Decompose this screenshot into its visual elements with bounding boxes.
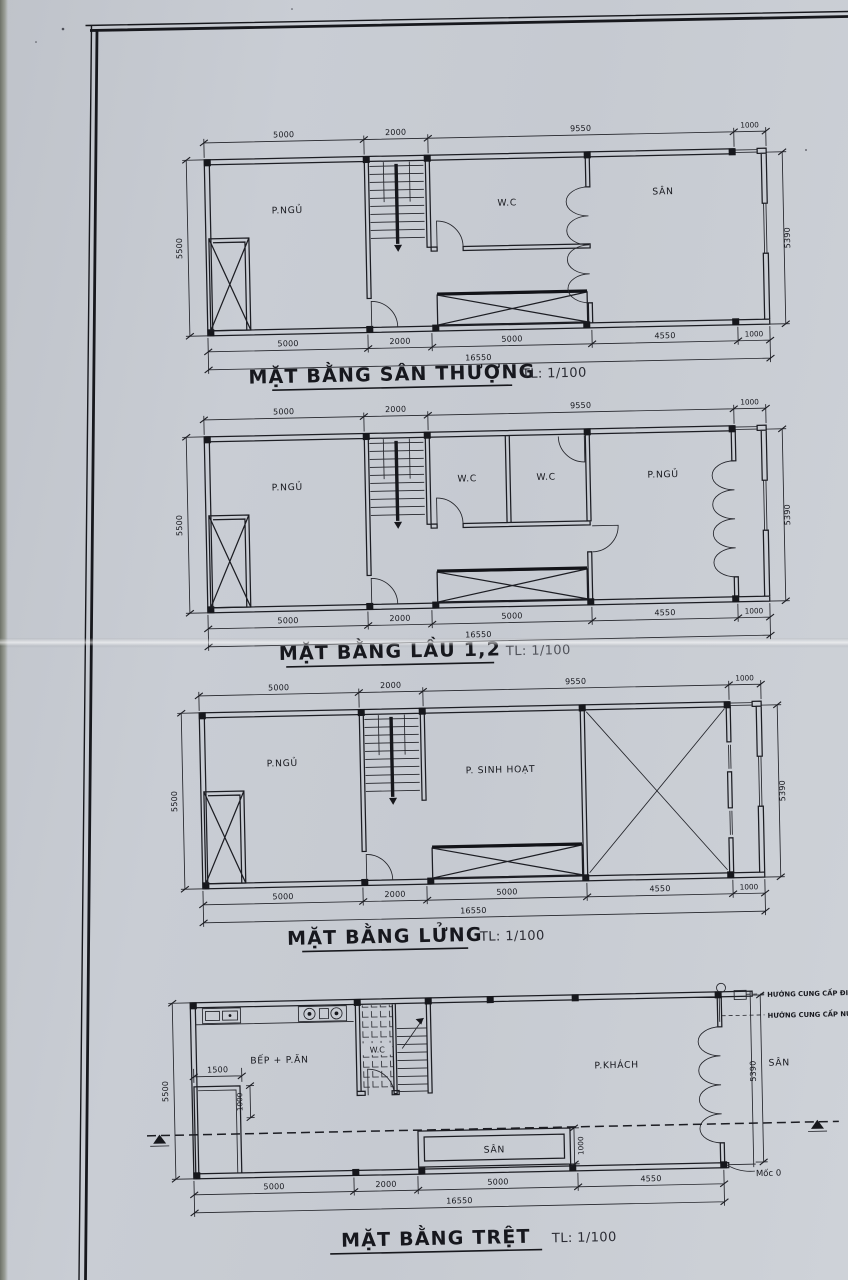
dim-bot-3: 5000	[487, 1177, 508, 1186]
floor-plan-san-thuong: P.NGỦ W.C SÂN 5000 2000 9550 1000 5500 5…	[173, 120, 795, 375]
room-label-wc: W.C	[497, 197, 517, 208]
room-label-terrace: SÂN	[652, 185, 674, 197]
dim-right: 5390	[778, 780, 787, 801]
dim-top-3: 9550	[570, 124, 591, 133]
dim-top-1: 5000	[273, 407, 294, 416]
note-power: HƯỚNG CUNG CẤP ĐIỆN	[767, 987, 848, 999]
dim-bot-1: 5000	[272, 892, 293, 901]
room-label-side-yard: SÂN	[768, 1056, 790, 1068]
dim-bot-3: 5000	[501, 334, 522, 343]
dim-top-4: 1000	[740, 397, 759, 406]
plan4-columns	[190, 991, 728, 1179]
floor-plan-lung: P.NGỦ P. SINH HOẠT 5000 2000 9550 1000 5…	[168, 673, 790, 928]
dim-bot-2: 2000	[389, 337, 410, 346]
door-arc-stair	[366, 854, 393, 881]
dim-top-2: 2000	[385, 128, 406, 137]
room-label-yard: SÂN	[484, 1143, 506, 1155]
kitchen-fixtures	[202, 1006, 346, 1024]
door-arc-bedroom	[592, 525, 619, 552]
door-arc-wc	[437, 221, 464, 248]
plan2-dimensions: 5000 2000 9550 1000 5500 5390 5000 2000 …	[173, 397, 795, 652]
plan3-scale: TL: 1/100	[479, 928, 545, 944]
double-height-void-x	[586, 709, 727, 873]
dim-bot-4: 4550	[654, 608, 675, 617]
plan4-title: MẶT BẰNG TRỆT TL: 1/100	[330, 1220, 617, 1254]
room-label-bedroom: P.NGỦ	[272, 204, 303, 217]
room-label-wc: W.C	[370, 1045, 386, 1054]
dim-bot-4: 4550	[649, 884, 670, 893]
plan2-columns	[204, 425, 740, 613]
dim-bot-2: 2000	[389, 614, 410, 623]
dim-left: 5500	[170, 791, 179, 812]
dim-bot-3: 5000	[496, 887, 517, 896]
dim-bot-4: 4550	[640, 1174, 661, 1183]
dim-right: 5390	[783, 227, 792, 248]
dim-total: 16550	[460, 906, 487, 916]
sink-drain	[229, 1014, 232, 1017]
dim-top-1: 5000	[273, 130, 294, 139]
dim-left: 5500	[175, 238, 184, 259]
dim-bot-5: 1000	[740, 882, 759, 891]
plan4-walls	[190, 991, 756, 1183]
note-datum: Mốc 0	[756, 1168, 782, 1180]
dim-top-3: 9550	[570, 401, 591, 410]
room-label-living: P. SINH HOẠT	[466, 764, 536, 776]
dim-bot-3: 5000	[501, 611, 522, 620]
dim-bot-1: 5000	[277, 339, 298, 348]
planter-hatch	[209, 238, 251, 331]
room-label-bedroom-right: P.NGỦ	[647, 468, 678, 481]
plan3-dimensions: 5000 2000 9550 1000 5500 5390 5000 2000 …	[168, 673, 790, 928]
dim-bot-2: 2000	[384, 890, 405, 899]
stairs	[369, 161, 425, 252]
planter-hatch	[209, 515, 251, 608]
plan1-scale: TL: 1/100	[521, 366, 587, 382]
dim-bot-5: 1000	[745, 329, 764, 338]
section-line	[147, 1121, 839, 1135]
plan1-columns	[204, 148, 740, 336]
folding-door	[566, 187, 590, 303]
dim-bot-2: 2000	[375, 1180, 396, 1189]
paper-fold-crease	[0, 638, 848, 648]
dim-top-2: 2000	[380, 681, 401, 690]
dim-top-2: 2000	[385, 405, 406, 414]
door-arc-wc-right	[558, 436, 585, 463]
dim-right: 5390	[749, 1060, 758, 1081]
plan3-columns	[199, 701, 735, 889]
room-label-bedroom: P.NGỦ	[267, 757, 298, 770]
note-water: HƯỚNG CUNG CẤP NƯỚC	[767, 1008, 848, 1020]
plan3-title-text: MẶT BẰNG LỬNG	[287, 920, 483, 950]
plan1-title: MẶT BẰNG SÂN THƯỢNG TL: 1/100	[248, 356, 587, 391]
dim-yard-depth: 1000	[576, 1136, 585, 1155]
skylight-void	[437, 568, 588, 602]
plan4-stairs	[397, 1018, 429, 1092]
plan4-dimensions: 5000 2000 5000 4550 16550 5500 5390 1500…	[159, 988, 768, 1218]
dim-right: 5390	[783, 504, 792, 525]
dim-bot-1: 5000	[263, 1182, 284, 1191]
plan1-title-text: MẶT BẰNG SÂN THƯỢNG	[248, 357, 536, 389]
door-arc-stair	[371, 301, 398, 328]
dim-bot-1: 5000	[277, 616, 298, 625]
plan4-scale: TL: 1/100	[551, 1230, 617, 1246]
dim-top-1: 5000	[268, 683, 289, 692]
blueprint-photo: P.NGỦ W.C SÂN 5000 2000 9550 1000 5500 5…	[0, 0, 848, 1280]
dim-left: 5500	[175, 515, 184, 536]
folding-door	[712, 461, 736, 577]
dim-bot-5: 1000	[745, 606, 764, 615]
skylight-void	[437, 291, 588, 325]
room-label-kitchen: BẾP + P.ĂN	[250, 1053, 309, 1066]
floor-plan-lau-1-2: P.NGỦ W.C W.C P.NGỦ 5000 2000 9550 1000 …	[173, 397, 795, 652]
stairs	[369, 438, 425, 529]
plan4-title-text: MẶT BẰNG TRỆT	[341, 1222, 531, 1252]
dim-closet-depth: 1000	[235, 1092, 244, 1111]
plan3-walls	[199, 701, 765, 889]
plan1-walls	[204, 148, 770, 336]
plan3-title: MẶT BẰNG LỬNG TL: 1/100	[287, 918, 545, 951]
stairs	[364, 714, 420, 805]
plan1-dimensions: 5000 2000 9550 1000 5500 5390 5000 2000 …	[173, 120, 795, 375]
floor-plan-tret: BẾP + P.ĂN W.C P.KHÁCH SÂN SÂN HƯỚNG CUN…	[144, 980, 848, 1217]
door-arc-stair	[371, 578, 398, 605]
room-label-wc-right: W.C	[536, 472, 556, 483]
plan2-walls	[204, 425, 770, 613]
skylight-void	[432, 844, 583, 878]
dim-left: 5500	[161, 1081, 170, 1102]
utility-riser-circle	[716, 983, 725, 992]
dim-top-4: 1000	[735, 673, 754, 682]
room-label-living: P.KHÁCH	[594, 1059, 639, 1072]
dim-bot-4: 4550	[654, 331, 675, 340]
room-label-wc-left: W.C	[457, 473, 477, 484]
front-folding-door	[698, 1027, 722, 1143]
room-label-bedroom-left: P.NGỦ	[272, 481, 303, 494]
dim-closet-width: 1500	[207, 1065, 228, 1074]
door-arc-wc-left	[437, 498, 464, 525]
dim-top-4: 1000	[740, 120, 759, 129]
dim-total: 16550	[446, 1196, 473, 1206]
dim-top-3: 9550	[565, 677, 586, 686]
planter-hatch	[204, 791, 246, 884]
